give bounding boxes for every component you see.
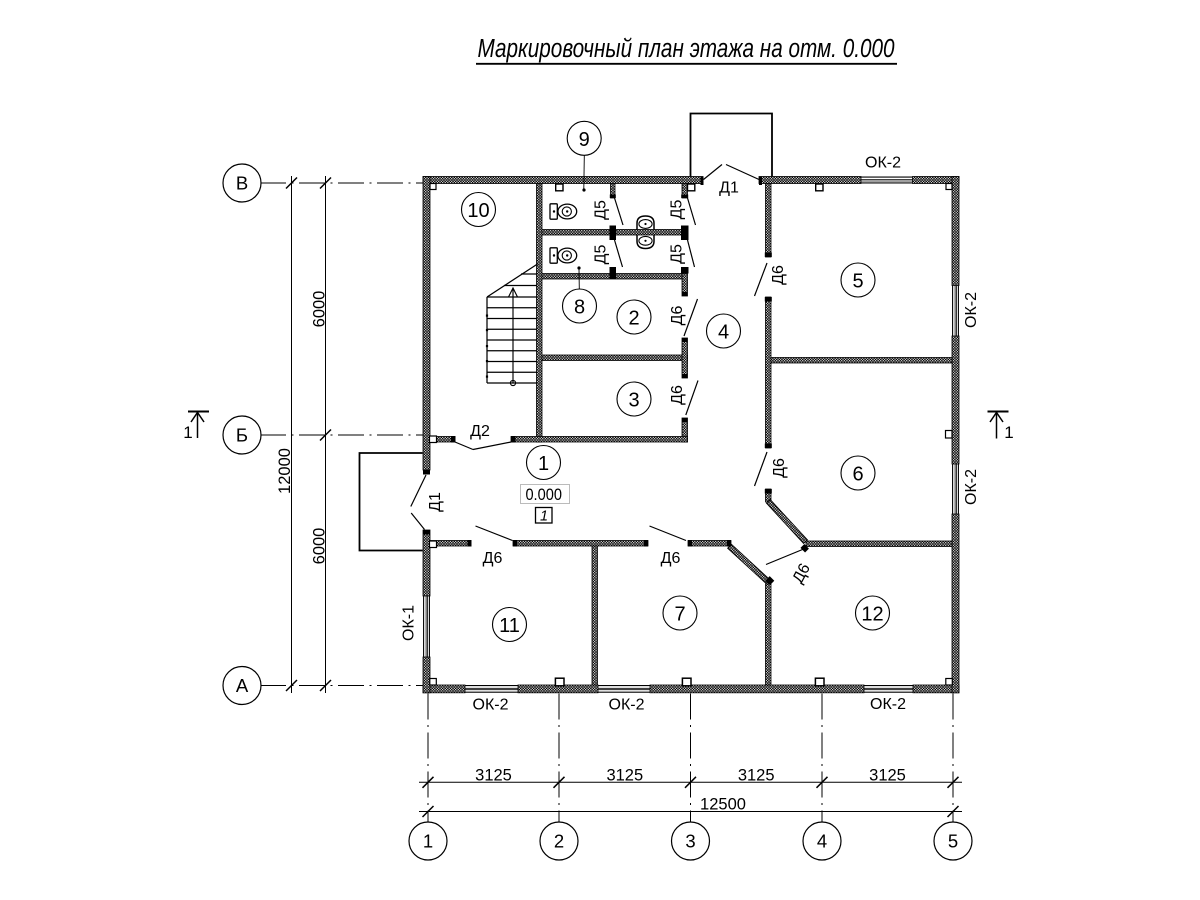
svg-text:1: 1 <box>538 453 549 475</box>
svg-text:Д6: Д6 <box>790 561 814 586</box>
svg-text:ОК-2: ОК-2 <box>870 696 906 713</box>
svg-text:6000: 6000 <box>311 528 329 565</box>
svg-text:8: 8 <box>574 297 585 319</box>
svg-text:3125: 3125 <box>869 766 906 784</box>
svg-text:В: В <box>236 173 248 194</box>
svg-text:Д2: Д2 <box>470 423 490 440</box>
svg-text:6: 6 <box>852 464 863 486</box>
svg-text:Д5: Д5 <box>669 244 686 264</box>
svg-text:Д6: Д6 <box>483 550 503 567</box>
svg-text:Д6: Д6 <box>770 265 787 285</box>
svg-text:Д6: Д6 <box>661 550 681 567</box>
svg-text:4: 4 <box>718 322 729 344</box>
svg-text:3125: 3125 <box>606 766 643 784</box>
svg-text:7: 7 <box>674 604 685 626</box>
svg-text:3: 3 <box>628 390 639 412</box>
svg-text:ОК-2: ОК-2 <box>865 154 901 171</box>
svg-text:Д5: Д5 <box>669 200 686 220</box>
svg-text:ОК-2: ОК-2 <box>473 697 509 714</box>
svg-text:2: 2 <box>628 308 639 330</box>
svg-text:4: 4 <box>817 831 827 852</box>
svg-text:Д5: Д5 <box>593 245 610 265</box>
svg-text:ОК-2: ОК-2 <box>609 697 645 714</box>
svg-text:1: 1 <box>183 423 192 442</box>
svg-text:5: 5 <box>852 271 863 293</box>
svg-text:Маркировочный план этажа на от: Маркировочный план этажа на отм. 0.000 <box>478 35 895 63</box>
svg-text:5: 5 <box>948 831 958 852</box>
svg-text:Д6: Д6 <box>771 458 788 478</box>
svg-text:1: 1 <box>540 509 548 525</box>
svg-text:Д1: Д1 <box>427 492 444 512</box>
svg-text:12: 12 <box>861 604 883 626</box>
svg-text:9: 9 <box>579 129 590 151</box>
svg-text:3125: 3125 <box>475 766 512 784</box>
svg-text:Д6: Д6 <box>669 385 686 405</box>
svg-text:А: А <box>236 675 249 696</box>
svg-text:6000: 6000 <box>311 291 329 328</box>
svg-text:10: 10 <box>467 200 489 222</box>
svg-text:ОК-2: ОК-2 <box>963 469 980 505</box>
svg-text:2: 2 <box>554 831 564 852</box>
svg-text:12500: 12500 <box>700 796 746 814</box>
svg-text:1: 1 <box>423 831 433 852</box>
svg-text:Д5: Д5 <box>593 200 610 220</box>
svg-text:11: 11 <box>499 615 520 637</box>
svg-text:3125: 3125 <box>738 766 775 784</box>
svg-text:ОК-2: ОК-2 <box>963 292 980 328</box>
svg-text:ОК-1: ОК-1 <box>401 605 418 641</box>
svg-text:1: 1 <box>1004 423 1013 442</box>
svg-text:Д1: Д1 <box>719 180 739 197</box>
svg-text:12000: 12000 <box>276 448 294 494</box>
svg-text:3: 3 <box>685 831 695 852</box>
svg-text:Б: Б <box>236 425 248 446</box>
svg-text:Д6: Д6 <box>669 306 686 326</box>
svg-text:0.000: 0.000 <box>525 486 562 504</box>
